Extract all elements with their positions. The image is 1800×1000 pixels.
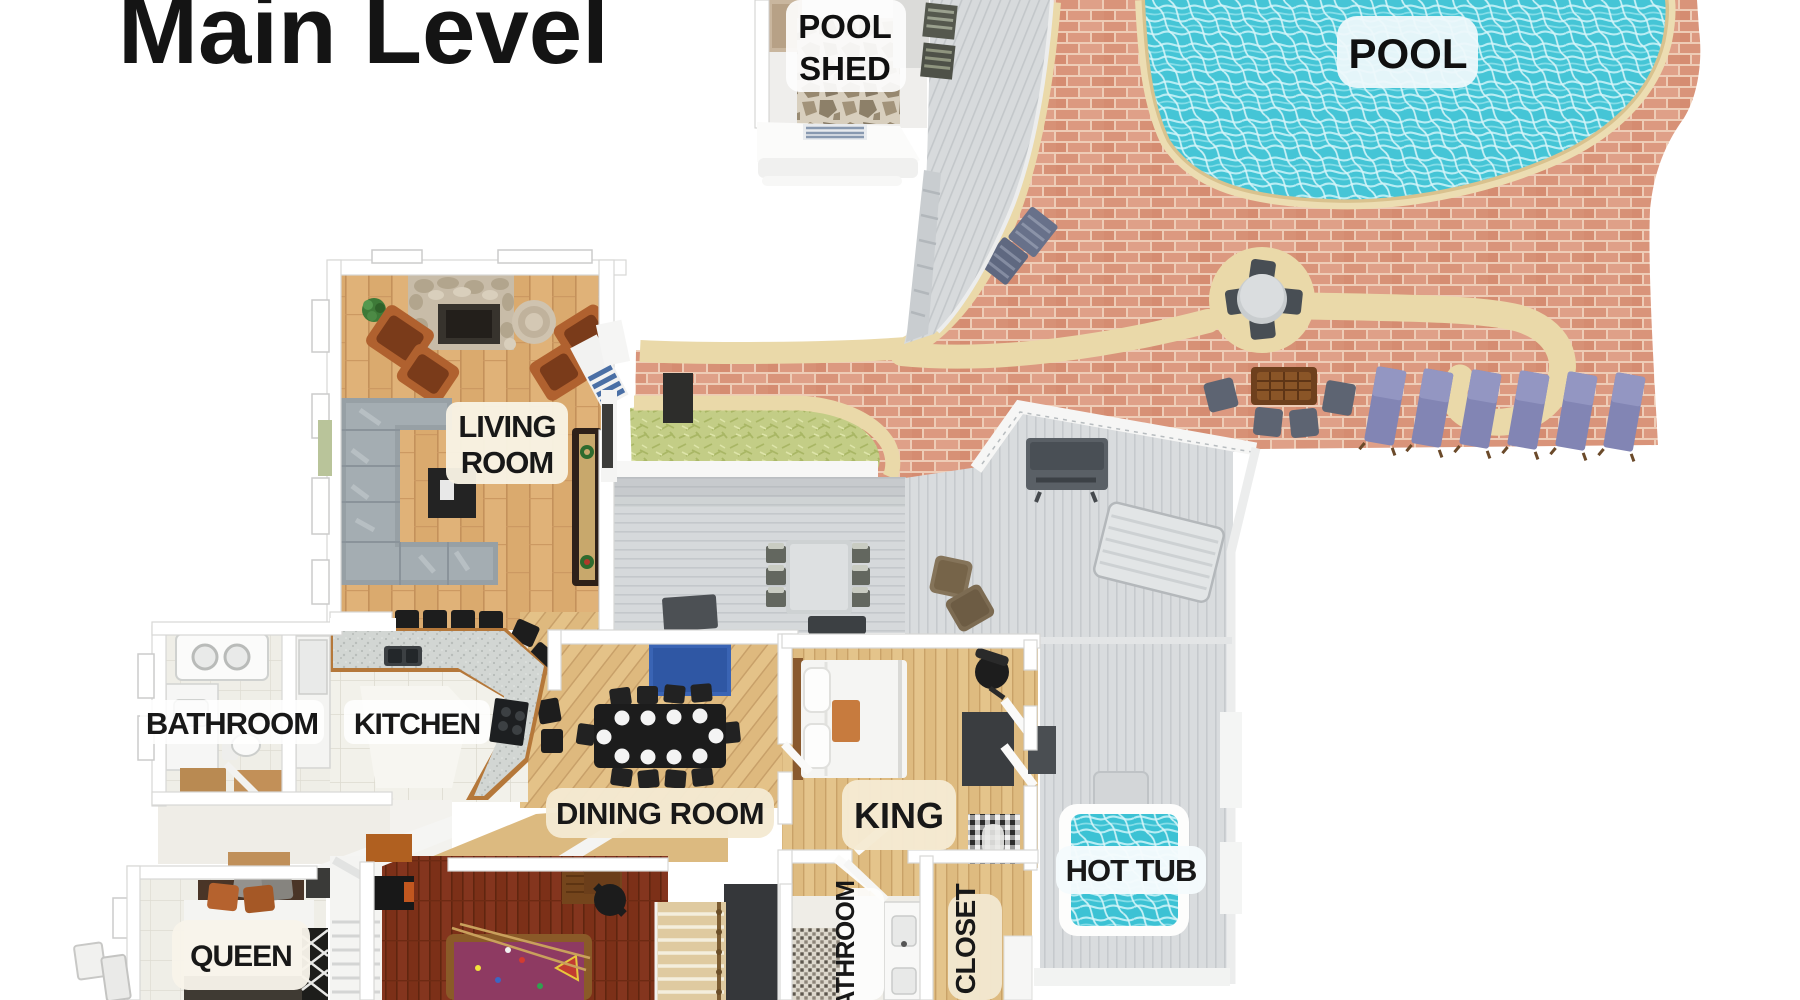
svg-text:DINING ROOM: DINING ROOM	[556, 796, 764, 831]
svg-text:KITCHEN: KITCHEN	[354, 708, 480, 741]
svg-text:SHED: SHED	[799, 50, 891, 87]
svg-text:LIVING: LIVING	[458, 409, 555, 444]
svg-text:POOL: POOL	[798, 8, 892, 45]
svg-text:KING: KING	[854, 795, 944, 836]
svg-text:BATHROOM: BATHROOM	[830, 880, 860, 1000]
svg-text:QUEEN: QUEEN	[190, 940, 292, 973]
svg-text:POOL: POOL	[1348, 30, 1467, 77]
svg-text:HOT TUB: HOT TUB	[1066, 853, 1197, 888]
svg-text:CLOSET: CLOSET	[950, 883, 981, 994]
svg-text:ROOM: ROOM	[461, 445, 553, 480]
svg-text:BATHROOM: BATHROOM	[146, 706, 318, 741]
